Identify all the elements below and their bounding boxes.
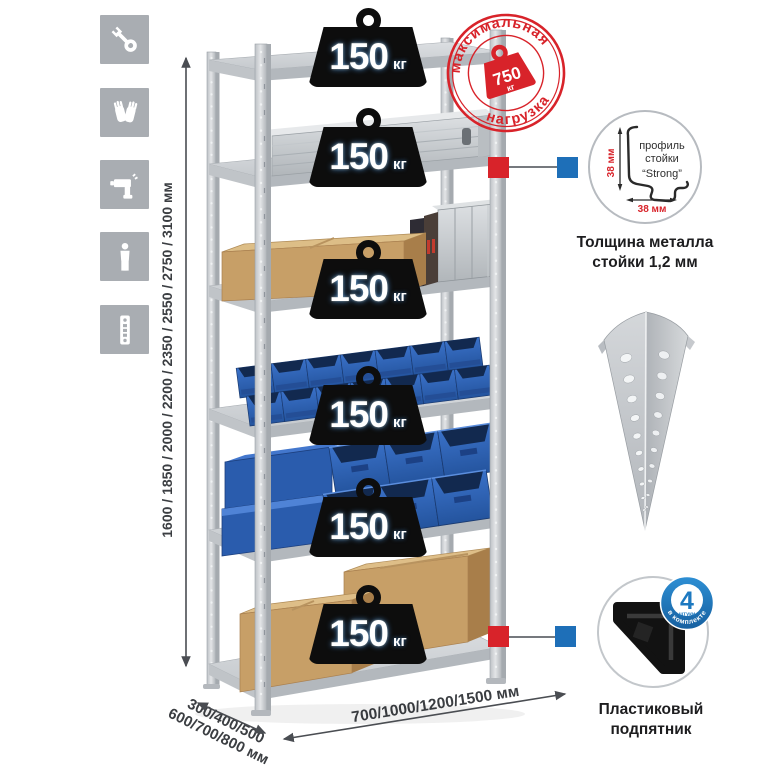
profile-dim-horizontal: 38 мм (638, 204, 667, 215)
weight-badge-shelf6: 150кг (308, 585, 428, 664)
weight-badge-shelf2: 150кг (308, 108, 428, 187)
weight-badge-shelf5: 150кг (308, 478, 428, 557)
max-load-stamp: максимальная нагрузка 750 кг (430, 0, 582, 150)
connector-line-profile (507, 166, 559, 168)
product-infographic: 1600 / 1850 / 2000 / 2200 / 2350 / 2550 … (0, 0, 765, 765)
weight-badge-shelf4: 150кг (308, 366, 428, 445)
connector-blue-square-foot (555, 626, 576, 647)
count-badge: 4 штуки в комплекте (658, 574, 716, 632)
profile-dim-vertical: 38 мм (606, 149, 617, 178)
connector-red-square-profile (488, 157, 509, 178)
connector-red-square-foot (488, 626, 509, 647)
angle-post-image (588, 302, 706, 537)
profile-label-2: стойки (645, 153, 679, 165)
profile-label-3: “Strong” (642, 168, 682, 180)
floor-shadow (195, 704, 525, 724)
weight-badge-shelf3: 150кг (308, 240, 428, 319)
profile-detail-circle: 38 мм 38 мм профиль стойки “Strong” (581, 107, 709, 229)
connector-line-foot (507, 636, 557, 638)
profile-label-1: профиль (639, 140, 685, 152)
connector-blue-square-profile (557, 157, 578, 178)
count-badge-small: штуки (679, 612, 696, 618)
weight-badge-shelf1: 150кг (308, 8, 428, 87)
